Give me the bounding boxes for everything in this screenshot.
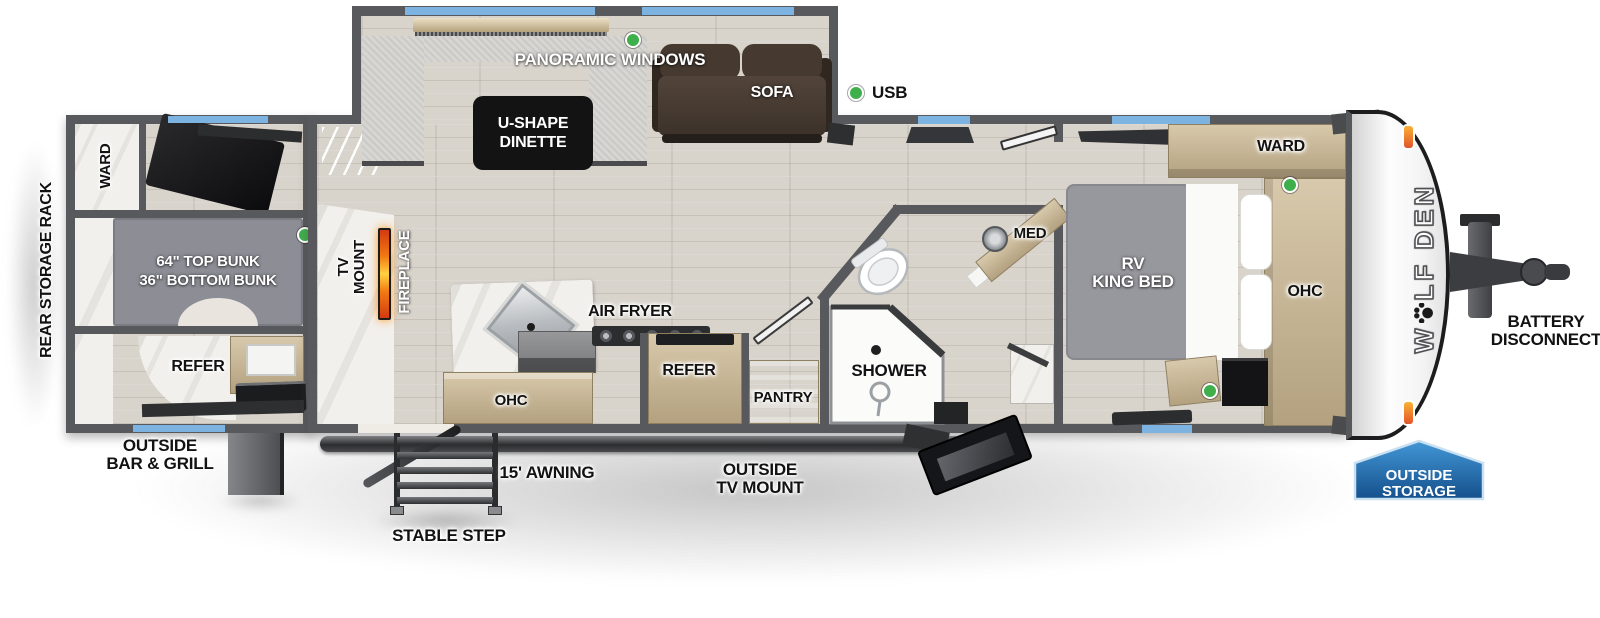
step-tread-2 xyxy=(397,452,493,459)
rear-divider-wall-1 xyxy=(75,210,303,218)
outside-storage-label-line1: OUTSIDE xyxy=(1386,467,1453,484)
awning-label: 15' AWNING xyxy=(477,464,617,482)
bunk-label-line2: 36" BOTTOM BUNK xyxy=(118,272,298,290)
entry-door-opening xyxy=(358,424,454,433)
outside-storage-label-line2: STORAGE xyxy=(1382,483,1456,500)
brand-logo-suffix: LF DEN xyxy=(1409,183,1440,301)
refer-pantry-wall xyxy=(742,333,749,424)
battery-disconnect-label-line2: DISCONNECT xyxy=(1456,331,1600,349)
king-bed-sheet xyxy=(1186,184,1238,360)
fireplace xyxy=(378,228,391,320)
stable-step-label: STABLE STEP xyxy=(369,527,529,545)
marker-light-top xyxy=(1404,126,1413,148)
tv-mount-label-line1: TV xyxy=(336,258,352,277)
usb-indicator-dot xyxy=(848,85,864,101)
window-valance xyxy=(413,18,609,32)
shower-label: SHOWER xyxy=(824,362,954,380)
step-tread-4 xyxy=(397,482,493,489)
slideout-window-1 xyxy=(405,7,595,15)
air-fryer-label: AIR FRYER xyxy=(560,303,700,321)
bath-counter xyxy=(934,402,968,424)
hall-shelf xyxy=(906,127,974,143)
marker-light-bottom xyxy=(1404,402,1413,424)
range-oven xyxy=(518,331,596,373)
step-tread-5 xyxy=(397,497,493,504)
bedroom-usb-indicator-dot-2 xyxy=(1202,383,1218,399)
fireplace-label: FIREPLACE xyxy=(396,212,414,332)
dinette-label-line1: U-SHAPE xyxy=(498,114,569,133)
rear-refer-label: REFER xyxy=(148,358,248,376)
hall-overhead-cabinet xyxy=(827,122,855,145)
kitchen-refer-top xyxy=(656,334,734,345)
bedroom-top-window xyxy=(1112,116,1210,124)
bedroom-ohc-cabinet xyxy=(1264,178,1346,426)
bedroom-bottom-window xyxy=(1142,425,1192,433)
rear-divider-wall-2 xyxy=(75,326,303,334)
kitchen-ohc-label: OHC xyxy=(471,392,551,410)
king-bed-label-line1: RV xyxy=(1073,255,1193,273)
ward-divider-wall xyxy=(139,124,146,210)
bedroom-ohc-label: OHC xyxy=(1265,283,1345,301)
outside-tv-label-line2: TV MOUNT xyxy=(690,479,830,497)
rear-ward-label: WARD xyxy=(97,126,115,206)
pillow-2 xyxy=(1240,274,1272,350)
bedroom-ward-label: WARD xyxy=(1231,138,1331,156)
tv-mount-label-line2: MOUNT xyxy=(352,240,368,294)
sink-drain xyxy=(527,323,535,331)
brand-logo: WLF DEN xyxy=(1408,173,1440,363)
paw-print-icon xyxy=(1414,303,1434,323)
bedroom-nightstand xyxy=(1222,358,1268,406)
bedroom-foot-cabinet xyxy=(1165,355,1222,406)
rear-sink xyxy=(246,344,296,376)
usb-label: USB xyxy=(872,84,932,102)
slideout-left-wall xyxy=(352,6,361,124)
step-tread-1 xyxy=(397,437,493,444)
sofa-label: SOFA xyxy=(732,84,812,102)
dinette-table: U-SHAPE DINETTE xyxy=(473,96,593,170)
bunk-label-line1: 64" TOP BUNK xyxy=(118,253,298,271)
bedroom-bench xyxy=(1112,410,1192,426)
rear-bottom-window xyxy=(133,425,225,432)
rear-top-window xyxy=(168,116,268,123)
step-foot-left xyxy=(390,506,404,515)
hall-top-window xyxy=(918,116,970,124)
pillow-1 xyxy=(1240,194,1272,270)
king-bed-label-line2: KING BED xyxy=(1073,273,1193,291)
sofa-back-cushion-2 xyxy=(742,44,822,80)
outside-storage-badge: OUTSIDE STORAGE xyxy=(1352,438,1486,502)
bedroom-usb-indicator-dot-1 xyxy=(1282,177,1298,193)
panoramic-windows-label: PANORAMIC WINDOWS xyxy=(500,51,720,69)
slideout-window-2 xyxy=(642,7,794,15)
battery-disconnect-label-line1: BATTERY xyxy=(1456,313,1600,331)
rear-storage-rack-label: REAR STORAGE RACK xyxy=(38,180,56,360)
brand-logo-prefix: W xyxy=(1409,325,1440,354)
dinette-label-line2: DINETTE xyxy=(499,133,566,152)
toilet xyxy=(846,238,918,302)
pantry-label: PANTRY xyxy=(733,389,833,407)
dinette-bench-left xyxy=(362,36,424,166)
sofa-base xyxy=(662,134,822,143)
outside-bar-grill-label-line1: OUTSIDE xyxy=(60,437,260,455)
floorplan: WARD 64" TOP BUNK 36" BOTTOM BUNK REFER … xyxy=(0,0,1600,618)
kitchen-refer-label: REFER xyxy=(644,362,734,380)
panoramic-usb-indicator-dot xyxy=(625,32,641,48)
outside-tv-label-line1: OUTSIDE xyxy=(690,461,830,479)
outside-bar-grill-label-line2: BAR & GRILL xyxy=(60,455,260,473)
tv-mount-label: TV MOUNT xyxy=(334,227,370,307)
step-foot-right xyxy=(488,506,502,515)
med-label: MED xyxy=(990,225,1070,243)
